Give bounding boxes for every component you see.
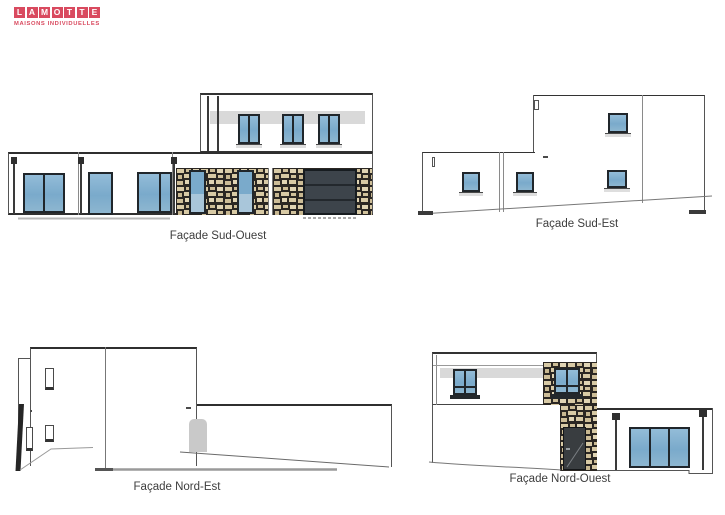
downspout-head [699,410,707,417]
window-sill [450,395,480,399]
sliding-window [629,427,690,468]
ground-floor-wall [432,405,560,463]
caption-nord-ouest: Façade Nord-Ouest [460,473,660,485]
downspout [436,355,437,405]
entry-door [563,427,586,470]
parapet-line [433,365,543,366]
downspout-head [612,413,620,420]
window [453,369,477,395]
drawing-sheet: L A M O T T E MAISONS INDIVIDUELLES [0,0,725,515]
window [554,368,580,394]
door-handle [566,448,570,450]
downspout [615,420,617,470]
facade-nord-ouest-drawing: Façade Nord-Ouest [0,0,725,515]
downspout [702,417,704,470]
window-sill [551,394,583,399]
